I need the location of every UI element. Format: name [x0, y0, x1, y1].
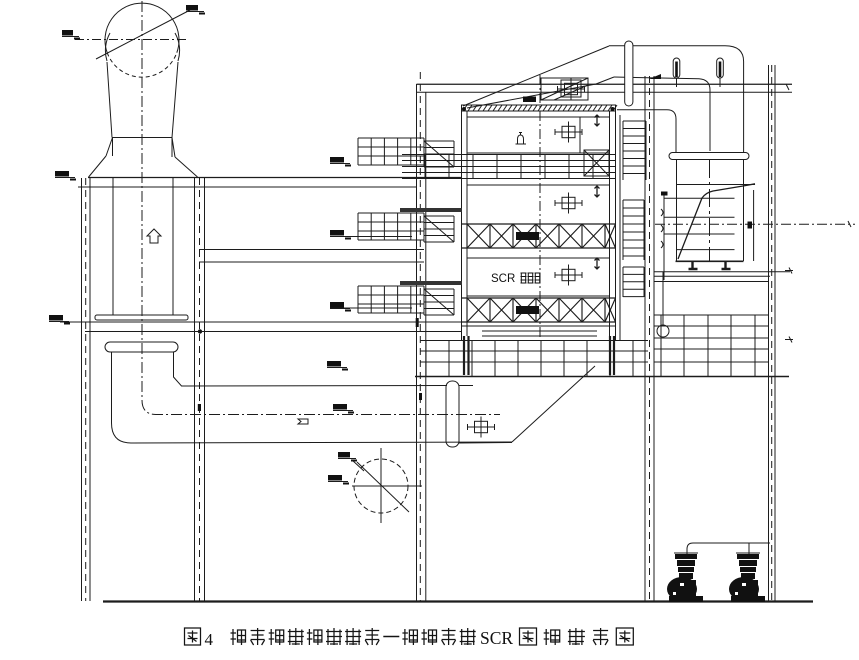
svg-text:SCR: SCR	[480, 628, 513, 648]
svg-text:SCR: SCR	[491, 273, 515, 285]
svg-text:4: 4	[205, 630, 214, 649]
